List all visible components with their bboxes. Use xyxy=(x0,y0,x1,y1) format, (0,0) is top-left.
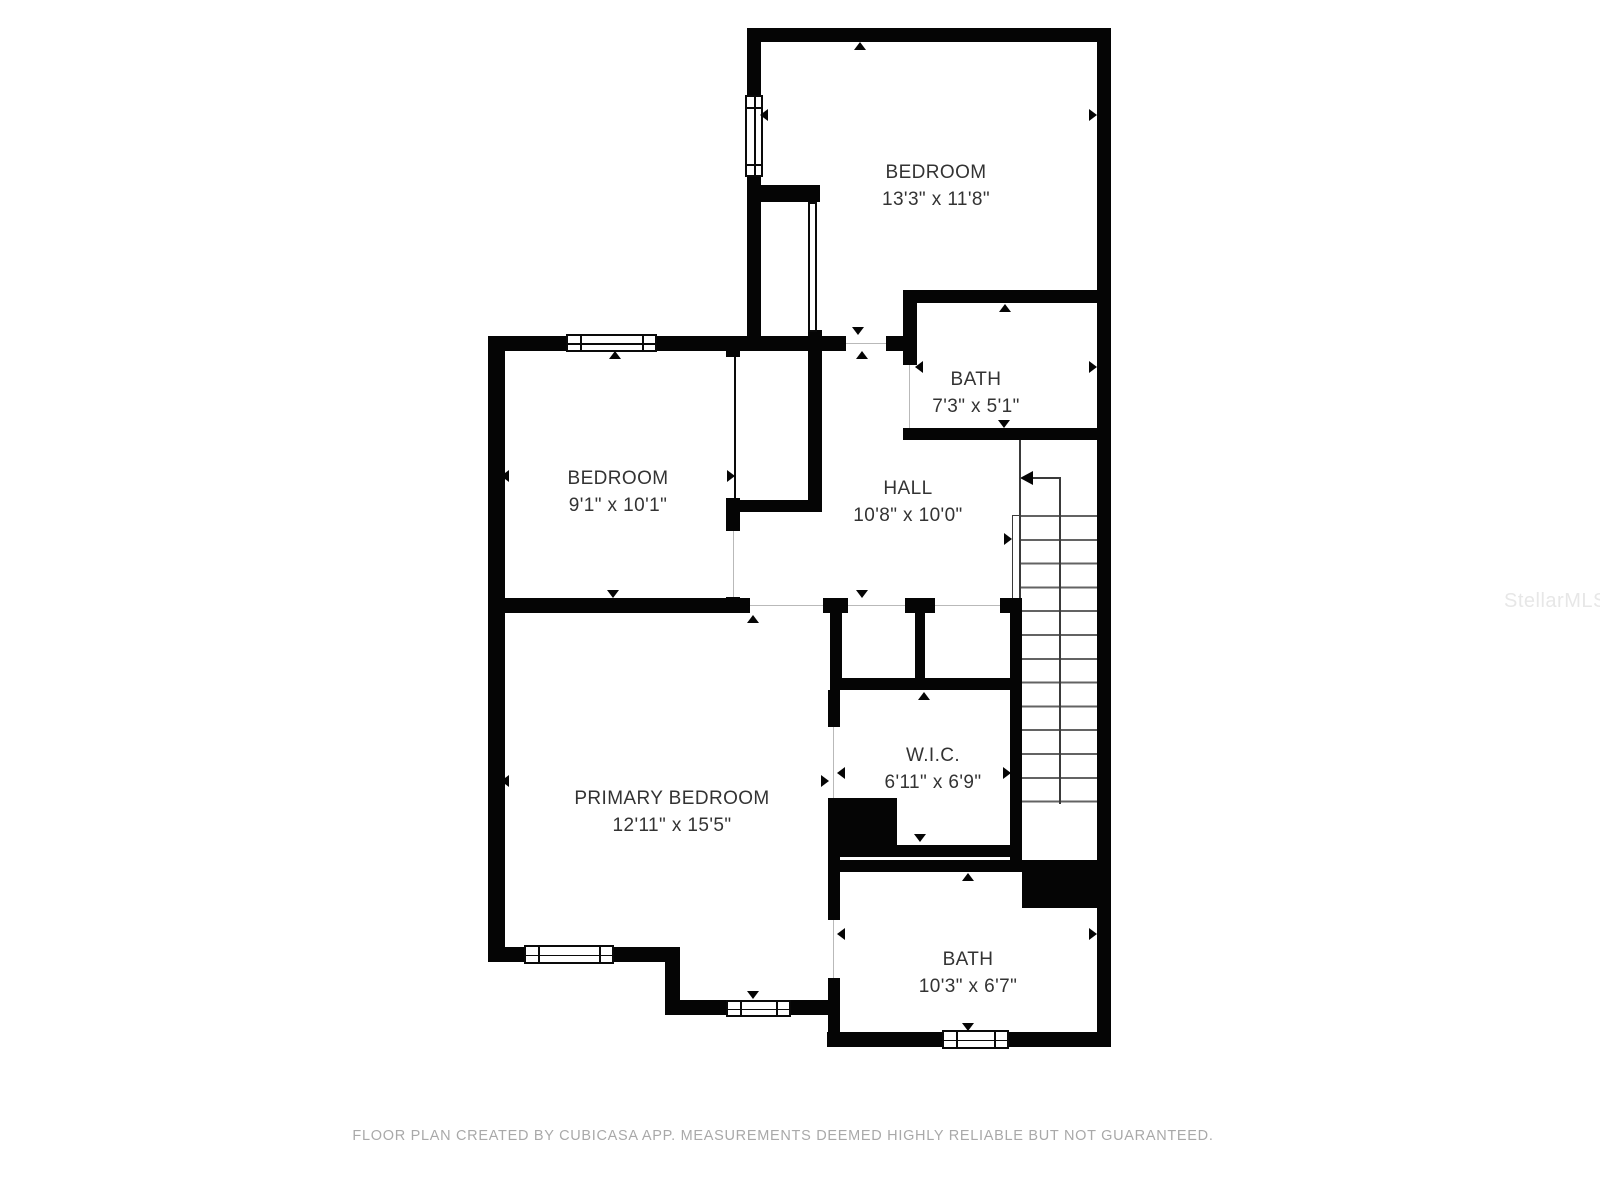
wall-midpoint-arrow-icon xyxy=(747,615,759,623)
room-dims: 10'8" x 10'0" xyxy=(853,502,962,529)
door-opening xyxy=(733,531,734,597)
room-label-bath-bottom: BATH 10'3" x 6'7" xyxy=(919,946,1017,1000)
wall xyxy=(828,860,1022,872)
room-label-wic: W.I.C. 6'11" x 6'9" xyxy=(884,742,981,796)
wall xyxy=(1022,860,1097,908)
wall-midpoint-arrow-icon xyxy=(501,775,509,787)
room-name: BATH xyxy=(932,366,1019,393)
wall-midpoint-arrow-icon xyxy=(607,590,619,598)
wall xyxy=(830,678,1022,690)
room-dims: 13'3" x 11'8" xyxy=(882,186,990,213)
stair-direction-line xyxy=(1031,477,1061,479)
wall-midpoint-arrow-icon xyxy=(854,42,866,50)
wall xyxy=(903,293,917,365)
floor-plan: BEDROOM 13'3" x 11'8" BATH 7'3" x 5'1" B… xyxy=(0,0,1600,1200)
wall-midpoint-arrow-icon xyxy=(501,470,509,482)
wall-midpoint-arrow-icon xyxy=(760,109,768,121)
wall xyxy=(905,598,935,613)
wall-midpoint-arrow-icon xyxy=(852,327,864,335)
wall xyxy=(747,185,820,202)
stellar-mls-watermark: StellarMLS xyxy=(1504,590,1600,613)
wall xyxy=(726,351,740,357)
wall xyxy=(823,598,848,613)
room-name: HALL xyxy=(853,475,962,502)
wall xyxy=(838,845,1022,857)
wall xyxy=(747,28,761,97)
room-dims: 7'3" x 5'1" xyxy=(932,393,1019,420)
wall-midpoint-arrow-icon xyxy=(837,928,845,940)
room-name: BEDROOM xyxy=(882,159,990,186)
wall-midpoint-arrow-icon xyxy=(962,1023,974,1031)
wall-midpoint-arrow-icon xyxy=(999,304,1011,312)
window xyxy=(942,1030,1009,1049)
wall xyxy=(828,690,840,727)
wall xyxy=(1097,28,1111,1047)
wall xyxy=(808,330,822,512)
wall xyxy=(747,28,1111,42)
room-name: W.I.C. xyxy=(884,742,981,769)
room-name: PRIMARY BEDROOM xyxy=(574,785,769,812)
wall xyxy=(1010,613,1022,860)
stair-direction-line xyxy=(1059,478,1061,804)
disclaimer-text: FLOOR PLAN CREATED BY CUBICASA APP. MEAS… xyxy=(352,1128,1213,1144)
door-opening xyxy=(909,365,910,428)
wall xyxy=(830,613,842,680)
window xyxy=(726,1000,791,1017)
door-opening xyxy=(846,343,886,344)
wall-midpoint-arrow-icon xyxy=(998,420,1010,428)
wall xyxy=(1000,598,1022,613)
wall xyxy=(488,598,750,613)
room-label-primary-bedroom: PRIMARY BEDROOM 12'11" x 15'5" xyxy=(574,785,769,839)
wall-midpoint-arrow-icon xyxy=(727,470,735,482)
room-name: BATH xyxy=(919,946,1017,973)
door-opening xyxy=(848,605,905,606)
stair-railing xyxy=(1012,515,1020,610)
wall-midpoint-arrow-icon xyxy=(609,351,621,359)
window xyxy=(745,95,763,177)
wall-midpoint-arrow-icon xyxy=(918,692,930,700)
wall-midpoint-arrow-icon xyxy=(1089,361,1097,373)
room-dims: 12'11" x 15'5" xyxy=(574,812,769,839)
wall-midpoint-arrow-icon xyxy=(1089,928,1097,940)
room-label-bedroom-left: BEDROOM 9'1" x 10'1" xyxy=(568,465,669,519)
stair-up-arrow-icon xyxy=(1020,471,1033,485)
wall-midpoint-arrow-icon xyxy=(1003,767,1011,779)
room-dims: 10'3" x 6'7" xyxy=(919,973,1017,1000)
wall-midpoint-arrow-icon xyxy=(856,351,868,359)
wall xyxy=(903,428,1111,440)
window xyxy=(524,945,614,964)
wall-midpoint-arrow-icon xyxy=(1004,533,1012,545)
wall-midpoint-arrow-icon xyxy=(837,767,845,779)
wall xyxy=(735,500,822,512)
wall xyxy=(915,613,925,680)
window xyxy=(566,334,657,352)
room-label-bedroom-top: BEDROOM 13'3" x 11'8" xyxy=(882,159,990,213)
room-dims: 9'1" x 10'1" xyxy=(568,492,669,519)
wall-midpoint-arrow-icon xyxy=(915,361,923,373)
wall-midpoint-arrow-icon xyxy=(962,873,974,881)
closet-door-leaf xyxy=(808,202,817,332)
wall xyxy=(903,290,1111,303)
wall-midpoint-arrow-icon xyxy=(1089,109,1097,121)
room-name: BEDROOM xyxy=(568,465,669,492)
door-opening xyxy=(833,920,834,978)
room-dims: 6'11" x 6'9" xyxy=(884,769,981,796)
wall-midpoint-arrow-icon xyxy=(747,991,759,999)
wall-midpoint-arrow-icon xyxy=(914,834,926,842)
wall-midpoint-arrow-icon xyxy=(856,590,868,598)
wall xyxy=(488,336,505,962)
door-opening xyxy=(833,727,834,798)
room-label-bath-top: BATH 7'3" x 5'1" xyxy=(932,366,1019,420)
room-label-hall: HALL 10'8" x 10'0" xyxy=(853,475,962,529)
wall-midpoint-arrow-icon xyxy=(821,775,829,787)
door-opening xyxy=(750,605,823,606)
door-opening xyxy=(935,605,1000,606)
